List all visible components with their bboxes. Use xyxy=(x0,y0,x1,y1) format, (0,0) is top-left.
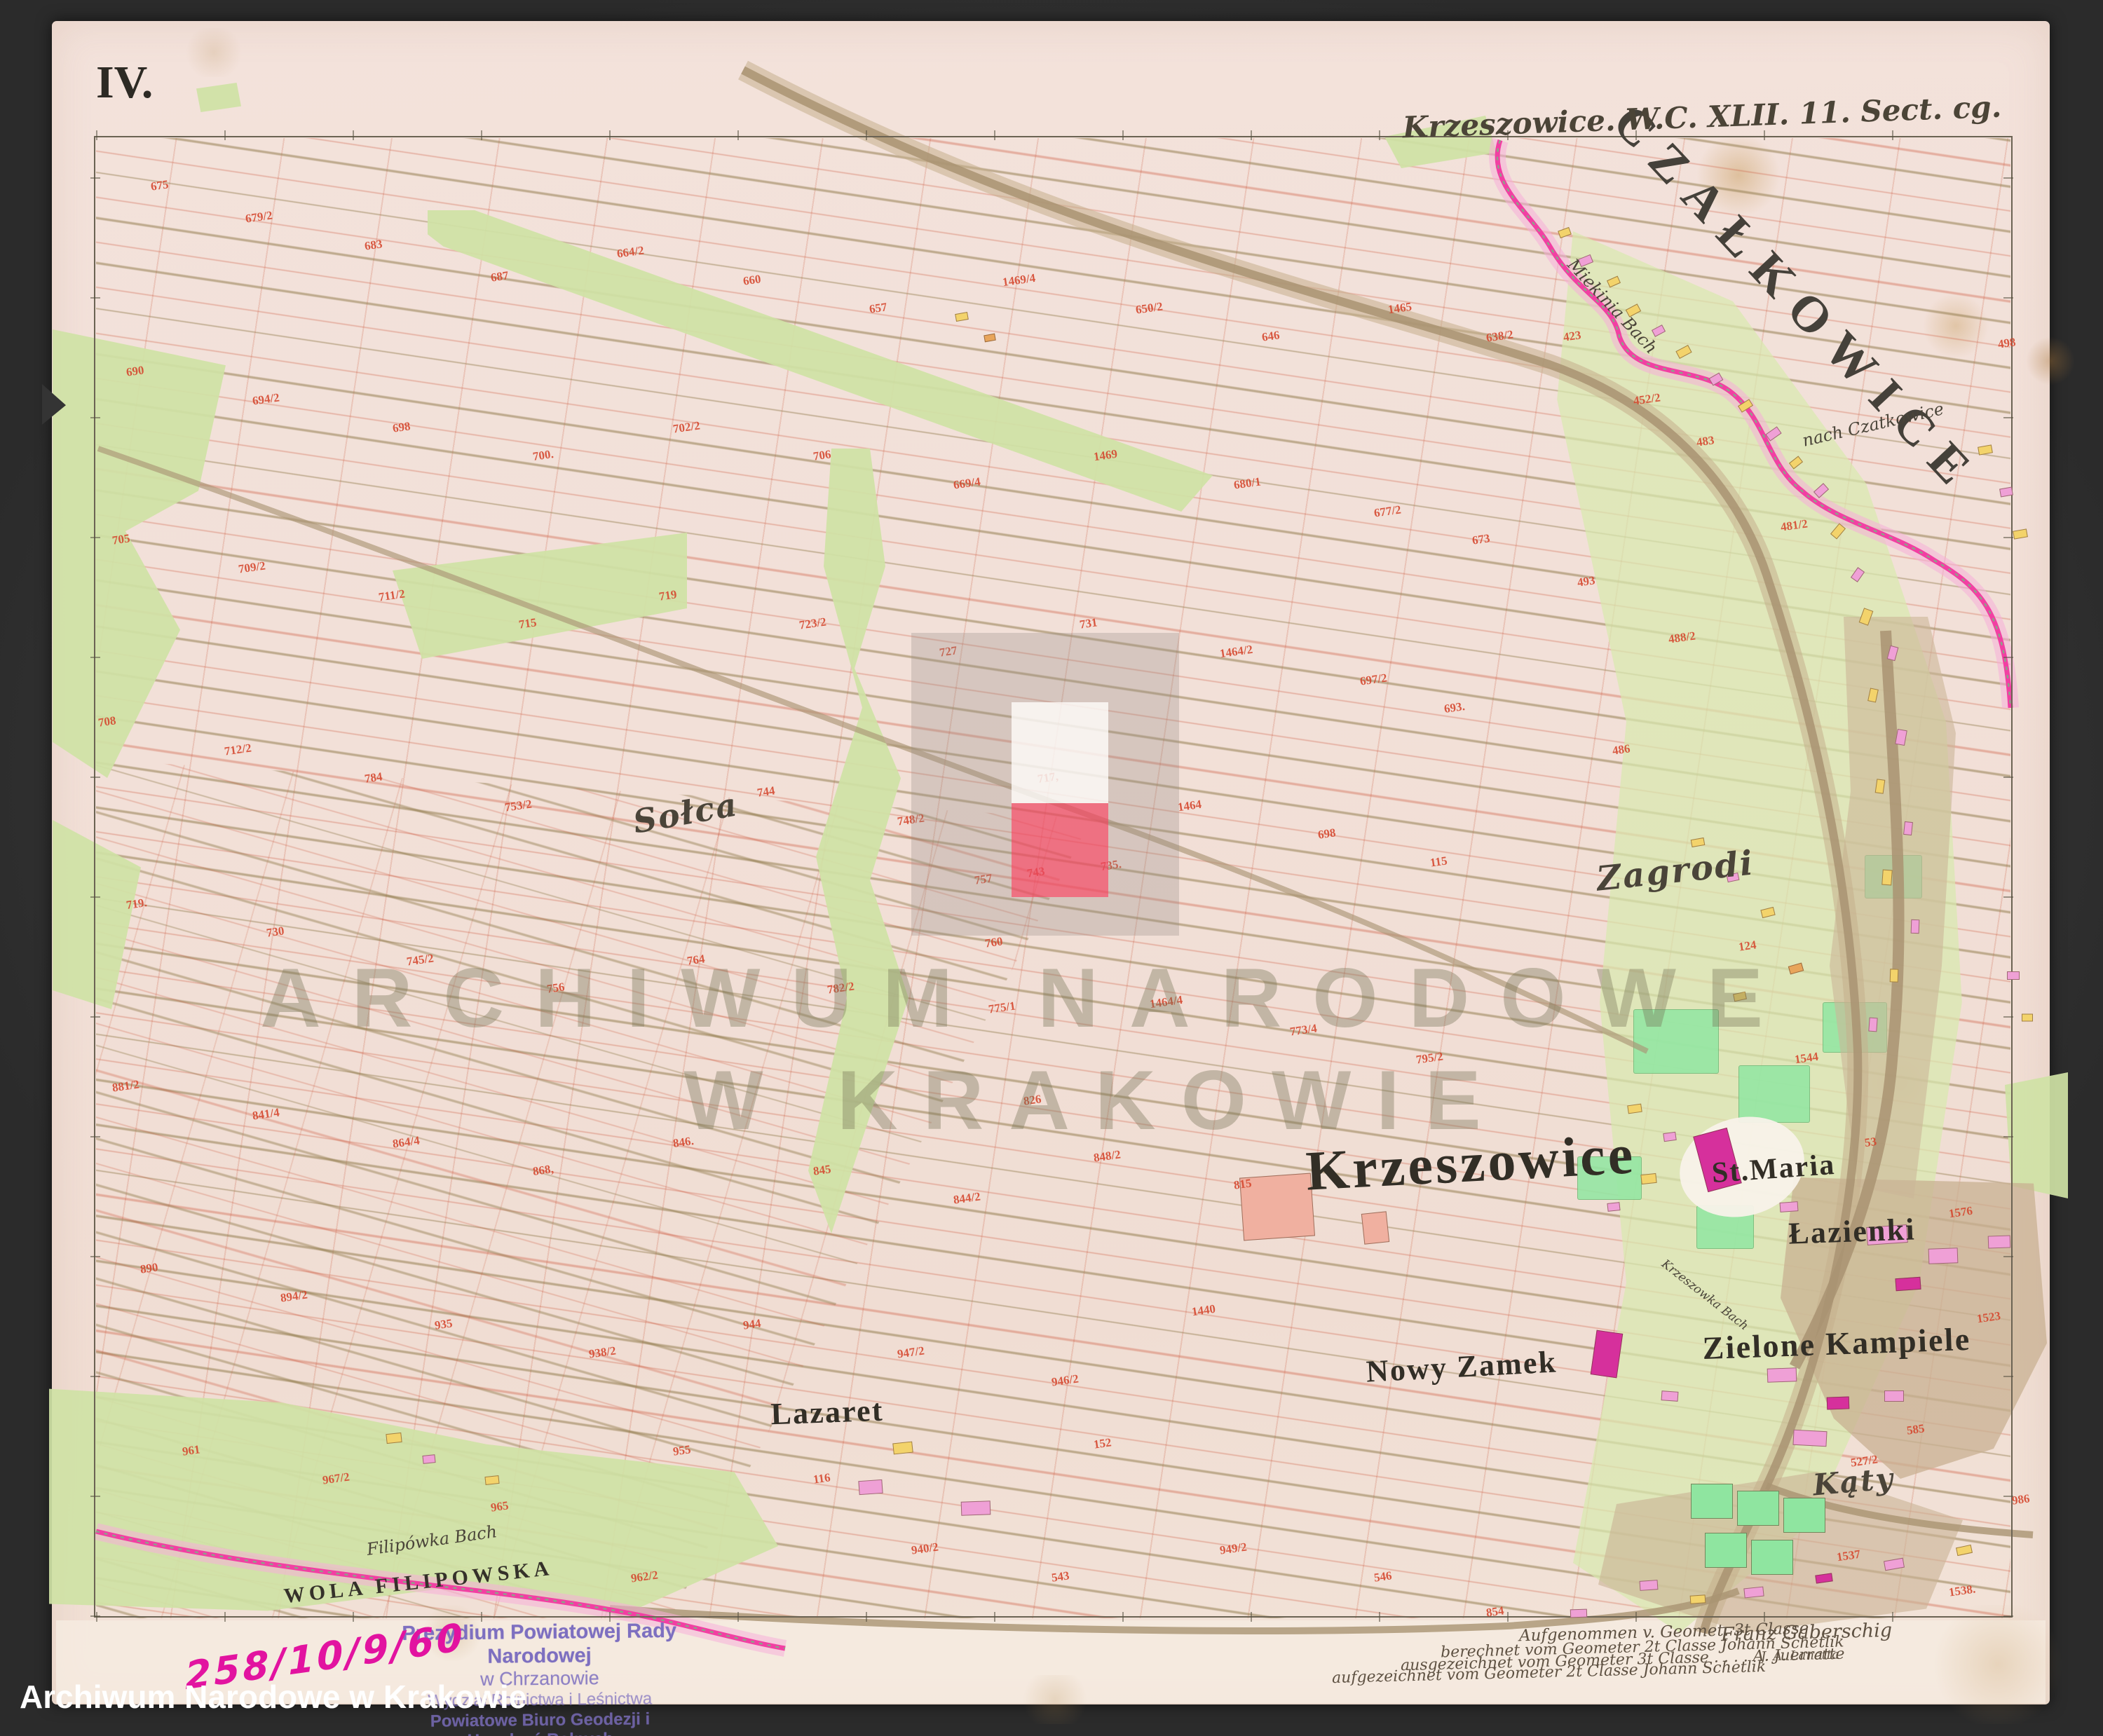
building xyxy=(1890,969,1899,982)
parcel-number: 673 xyxy=(1471,531,1491,547)
building xyxy=(2022,1014,2033,1022)
parcel-number: 543 xyxy=(1051,1568,1070,1585)
scan-background: 675679/2683687664/26606571469/4650/26461… xyxy=(0,0,2103,1736)
building xyxy=(1903,821,1913,835)
parcel-number: 687 xyxy=(490,268,510,285)
parcel-number: 152 xyxy=(1093,1435,1112,1451)
overlay-white-patch xyxy=(1012,702,1108,803)
place-label: Kąty xyxy=(1811,1461,1896,1503)
building xyxy=(484,1475,499,1485)
building xyxy=(1881,870,1893,886)
building xyxy=(858,1479,883,1495)
parcel-number: 784 xyxy=(364,770,383,786)
parcel-number: 890 xyxy=(139,1260,159,1276)
building xyxy=(1691,1484,1733,1519)
place-label: Łazienki xyxy=(1788,1211,1916,1251)
building xyxy=(1911,920,1920,934)
archive-caption: Archiwum Narodowe w Krakowie xyxy=(20,1678,526,1716)
place-label: Lazaret xyxy=(770,1393,885,1433)
building xyxy=(1690,1594,1706,1604)
building xyxy=(1792,1430,1827,1447)
parcel-number: 955 xyxy=(672,1442,692,1458)
parcel-number: 546 xyxy=(1373,1568,1393,1585)
building xyxy=(1361,1211,1389,1245)
parcel-number: 854 xyxy=(1485,1604,1505,1620)
parcel-number: 657 xyxy=(869,300,888,316)
building xyxy=(1780,1201,1799,1212)
building xyxy=(961,1501,991,1515)
parcel-number: 690 xyxy=(125,363,145,379)
parcel-number: 731 xyxy=(1079,615,1098,631)
parcel-number: 760 xyxy=(984,934,1004,950)
building xyxy=(2007,971,2020,980)
building xyxy=(1783,1498,1825,1533)
building xyxy=(1988,1235,2011,1248)
parcel-number: 498 xyxy=(1997,335,2017,351)
parcel-number: 715 xyxy=(518,615,538,631)
parcel-number: 815 xyxy=(1233,1176,1253,1192)
building xyxy=(1767,1367,1797,1382)
watermark-line1: ARCHIWUM NARODOWE xyxy=(260,950,1794,1046)
tick-col-left xyxy=(90,138,100,1617)
building xyxy=(1737,1491,1779,1526)
tick-row-bottom xyxy=(96,1612,2010,1622)
parcel-number: 698 xyxy=(1317,826,1337,842)
parcel-number: 961 xyxy=(182,1442,201,1458)
parcel-number: 719. xyxy=(125,896,148,913)
parcel-number: 483 xyxy=(1696,433,1715,449)
parcel-number: 868, xyxy=(532,1162,554,1179)
sheet-corner-number: IV. xyxy=(96,56,153,109)
building xyxy=(1640,1173,1656,1184)
building xyxy=(1895,1277,1921,1291)
building xyxy=(1751,1540,1793,1575)
building xyxy=(386,1433,402,1444)
parcel-number: 708 xyxy=(97,713,117,730)
building xyxy=(1868,1018,1877,1032)
handwriting-note: J. A. Lanetta xyxy=(1761,1648,1839,1665)
building xyxy=(1705,1533,1747,1568)
overlay-red-patch xyxy=(1012,803,1108,897)
parcel-number: 493 xyxy=(1577,573,1596,589)
parcel-number: 986 xyxy=(2011,1491,2031,1508)
parcel-number: 116 xyxy=(812,1470,831,1486)
parcel-number: 693. xyxy=(1443,699,1466,716)
parcel-number: 486 xyxy=(1612,741,1631,758)
parcel-number: 423 xyxy=(1563,328,1582,344)
building xyxy=(1640,1580,1659,1591)
parcel-number: 700. xyxy=(532,447,554,464)
parcel-number: 730 xyxy=(266,924,285,940)
building xyxy=(1827,1396,1850,1409)
parcel-number: 935 xyxy=(434,1316,454,1332)
parcel-number: 845 xyxy=(812,1162,832,1178)
parcel-number: 683 xyxy=(364,237,383,253)
parcel-number: 744 xyxy=(756,784,776,800)
watermark-line2: W KRAKOWIE xyxy=(683,1052,1506,1149)
building xyxy=(1570,1609,1587,1618)
building xyxy=(892,1442,913,1455)
building xyxy=(1743,1587,1764,1599)
building xyxy=(1607,1202,1620,1212)
building xyxy=(422,1454,435,1464)
parcel-number: 585 xyxy=(1906,1421,1926,1437)
parcel-number: 53 xyxy=(1864,1135,1878,1150)
tick-col-right xyxy=(2003,138,2013,1617)
parcel-number: 646 xyxy=(1261,328,1281,344)
parcel-number: 705 xyxy=(111,531,131,547)
parcel-number: 944 xyxy=(742,1316,762,1332)
building xyxy=(1663,1132,1676,1142)
building xyxy=(1884,1390,1904,1402)
parcel-number: 660 xyxy=(742,272,762,288)
parcel-number: 965 xyxy=(490,1498,510,1515)
parcel-number: 675 xyxy=(150,177,170,193)
road-south xyxy=(610,1591,1738,1631)
parcel-number: 719 xyxy=(658,587,678,603)
parcel-number: 706 xyxy=(812,447,832,463)
parcel-number: 698 xyxy=(392,419,411,435)
parcel-number: 115 xyxy=(1429,854,1448,870)
building xyxy=(1661,1390,1679,1402)
building xyxy=(1928,1248,1959,1264)
